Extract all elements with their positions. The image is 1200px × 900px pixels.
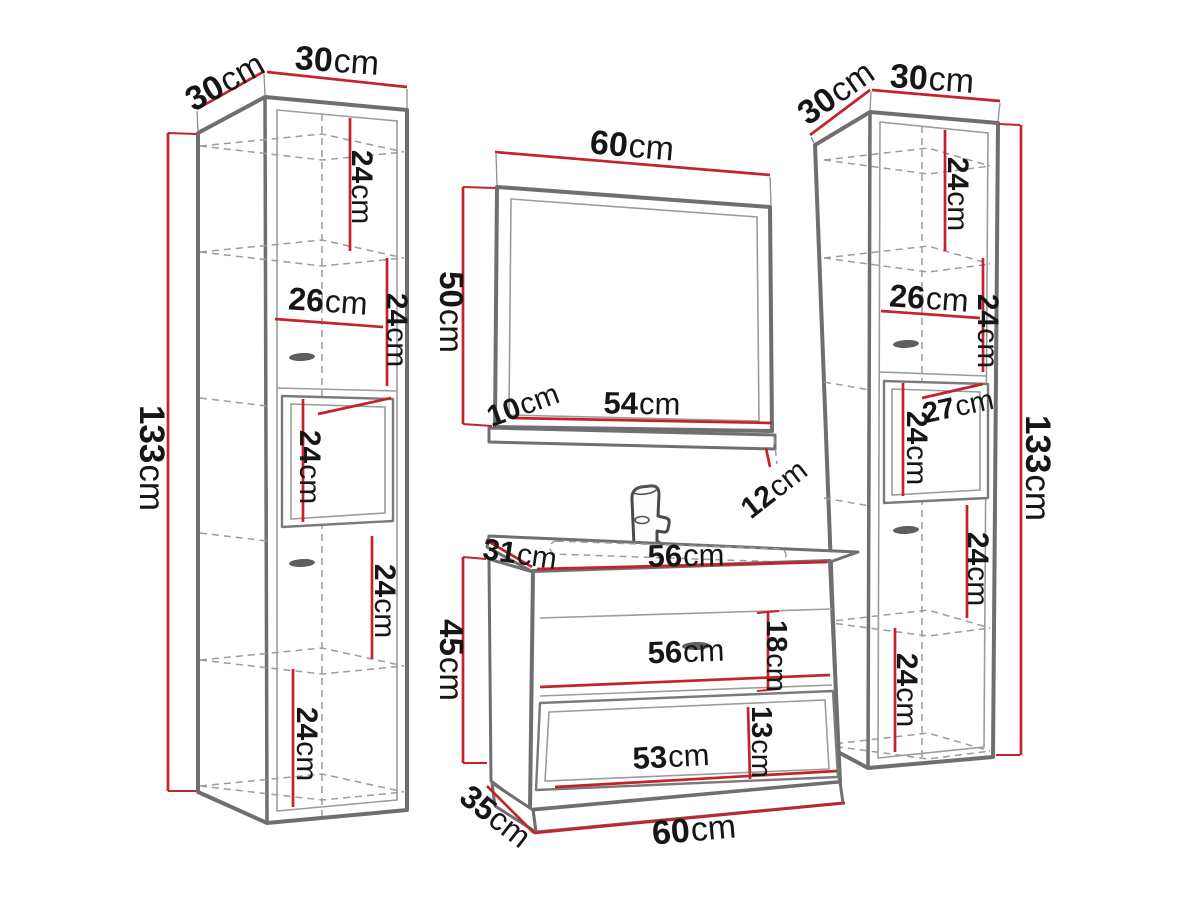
dim-right-cabinet-width: 30cm bbox=[889, 57, 976, 101]
dim-right-cabinet-section5: 24cm bbox=[890, 653, 923, 727]
dim-right-cabinet-height: 133cm bbox=[1018, 415, 1057, 521]
dim-right-cabinet-section2: 24cm bbox=[971, 294, 1004, 368]
dim-vanity-niche-width: 53cm bbox=[632, 737, 711, 776]
dim-vanity-drawer-width: 56cm bbox=[647, 633, 725, 671]
dim-right-cabinet-section4: 24cm bbox=[961, 532, 994, 606]
mirror: 60cm 50cm 10cm 54cm 12cm bbox=[433, 123, 814, 525]
dim-left-cabinet-height: 133cm bbox=[132, 405, 171, 511]
dim-left-cabinet-section2: 24cm bbox=[380, 293, 413, 367]
dim-left-cabinet-width: 30cm bbox=[294, 39, 381, 83]
dim-vanity-top-width: 56cm bbox=[647, 537, 724, 573]
diagram-canvas: 30cm 30cm 133cm 24cm 26cm 24cm 24cm 24cm… bbox=[0, 0, 1200, 900]
dim-left-cabinet-section1: 24cm bbox=[345, 150, 378, 224]
vanity-unit: 31cm 56cm 45cm 18cm 56cm 13cm 53cm 35cm … bbox=[433, 533, 858, 855]
dim-vanity-drawer-height: 18cm bbox=[760, 620, 792, 692]
vanity-structure bbox=[487, 536, 858, 832]
dim-vanity-base-width: 60cm bbox=[650, 807, 737, 852]
dim-mirror-shelf-drop: 12cm bbox=[735, 453, 814, 525]
dim-vanity-height: 45cm bbox=[433, 619, 470, 701]
dim-mirror-shelf-width: 54cm bbox=[603, 385, 680, 421]
right-cabinet-corner-edge bbox=[868, 112, 870, 768]
dim-mirror-height: 50cm bbox=[433, 271, 470, 353]
dim-left-cabinet-inner-width: 26cm bbox=[287, 280, 369, 321]
dim-left-cabinet-section5: 24cm bbox=[290, 707, 323, 781]
left-tall-cabinet: 30cm 30cm 133cm 24cm 26cm 24cm 24cm 24cm… bbox=[132, 39, 413, 823]
left-cabinet-corner-edge bbox=[265, 97, 267, 823]
dim-left-cabinet-section4: 24cm bbox=[368, 564, 401, 638]
vanity-side-panel bbox=[489, 559, 533, 810]
dim-vanity-niche-height: 13cm bbox=[745, 706, 777, 778]
dim-right-cabinet-section1: 24cm bbox=[941, 157, 974, 231]
dim-right-cabinet-inner-width: 26cm bbox=[888, 277, 970, 318]
dim-right-cabinet-section3: 24cm bbox=[900, 411, 933, 485]
dim-mirror-width: 60cm bbox=[588, 123, 675, 168]
dim-left-cabinet-section3: 24cm bbox=[293, 430, 326, 504]
furniture-dimension-diagram: 30cm 30cm 133cm 24cm 26cm 24cm 24cm 24cm… bbox=[0, 0, 1200, 900]
